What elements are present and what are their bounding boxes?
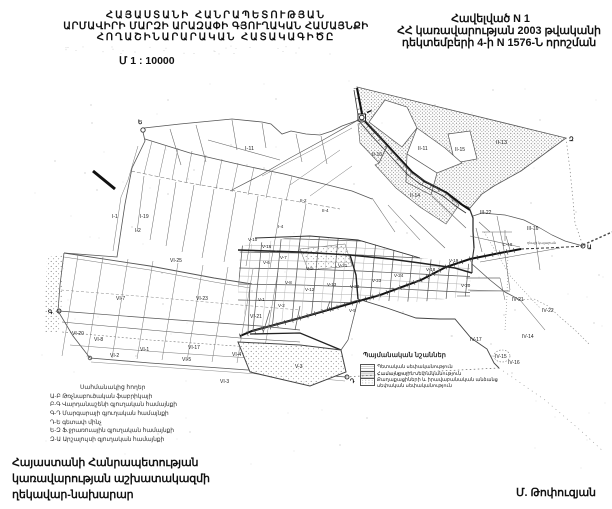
svg-text:V-10: V-10 xyxy=(248,237,258,242)
svg-text:V-16: V-16 xyxy=(262,244,272,249)
svg-text:Ա: Ա xyxy=(587,244,592,251)
svg-text:V-13: V-13 xyxy=(327,282,337,287)
svg-text:VI-4: VI-4 xyxy=(232,352,241,358)
svg-text:II-11: II-11 xyxy=(418,146,428,152)
svg-text:I-19: I-19 xyxy=(140,214,149,220)
svg-text:V-9: V-9 xyxy=(306,266,313,271)
svg-text:IV-16: IV-16 xyxy=(508,360,520,366)
svg-text:V-5: V-5 xyxy=(349,308,356,313)
svg-text:դեպի կայարան: դեպի կայարան xyxy=(527,240,557,245)
svg-text:V-20: V-20 xyxy=(461,283,471,288)
svg-text:V-7: V-7 xyxy=(280,255,287,260)
svg-text:VI-23: VI-23 xyxy=(196,296,208,302)
svg-text:I-1: I-1 xyxy=(112,214,118,220)
svg-text:VI-8: VI-8 xyxy=(94,337,103,343)
svg-text:V-1: V-1 xyxy=(258,297,265,302)
svg-text:IV-17: IV-17 xyxy=(470,337,482,343)
svg-text:V-12: V-12 xyxy=(305,287,315,292)
svg-text:VI-2: VI-2 xyxy=(110,353,119,359)
svg-text:VI-1: VI-1 xyxy=(140,347,149,353)
svg-text:VI-25: VI-25 xyxy=(170,258,182,264)
svg-text:Ե: Ե xyxy=(138,119,143,126)
svg-text:I-11: I-11 xyxy=(245,146,254,152)
svg-text:V-8: V-8 xyxy=(285,280,292,285)
svg-text:V-22: V-22 xyxy=(350,284,360,289)
svg-text:VI-20: VI-20 xyxy=(72,331,84,337)
svg-text:IV-22: IV-22 xyxy=(542,308,554,314)
svg-text:V-23: V-23 xyxy=(372,278,382,283)
svg-text:II-16: II-16 xyxy=(372,152,382,158)
svg-text:VI-5: VI-5 xyxy=(182,357,191,363)
svg-text:II-4: II-4 xyxy=(322,208,329,213)
svg-text:V-3: V-3 xyxy=(295,364,303,370)
svg-text:V-19: V-19 xyxy=(449,258,459,263)
svg-text:V-2: V-2 xyxy=(278,303,285,308)
svg-text:II-14: II-14 xyxy=(410,193,420,199)
svg-text:IV-15: IV-15 xyxy=(495,354,507,360)
svg-text:IV-14: IV-14 xyxy=(522,334,534,340)
svg-text:V-24: V-24 xyxy=(394,273,404,278)
svg-text:II-13: II-13 xyxy=(496,140,507,146)
svg-text:VI-17: VI-17 xyxy=(188,345,200,351)
svg-text:V-6: V-6 xyxy=(263,260,270,265)
svg-text:V-21: V-21 xyxy=(338,263,348,268)
svg-text:I-2: I-2 xyxy=(135,228,141,234)
svg-text:V-4: V-4 xyxy=(327,307,334,312)
svg-text:V-18: V-18 xyxy=(426,267,436,272)
svg-text:Զ: Զ xyxy=(569,136,574,143)
svg-text:VI-21: VI-21 xyxy=(250,314,262,320)
svg-text:II-2: II-2 xyxy=(300,198,307,203)
svg-text:VI-3: VI-3 xyxy=(220,379,229,385)
svg-text:Դ: Դ xyxy=(350,378,355,385)
svg-text:III-22: III-22 xyxy=(480,210,492,216)
svg-text:III-16: III-16 xyxy=(527,226,539,232)
svg-text:I-4: I-4 xyxy=(278,224,284,229)
svg-text:II-15: II-15 xyxy=(455,147,465,153)
svg-text:VI-7: VI-7 xyxy=(116,296,125,302)
svg-text:IV-21: IV-21 xyxy=(512,297,524,303)
